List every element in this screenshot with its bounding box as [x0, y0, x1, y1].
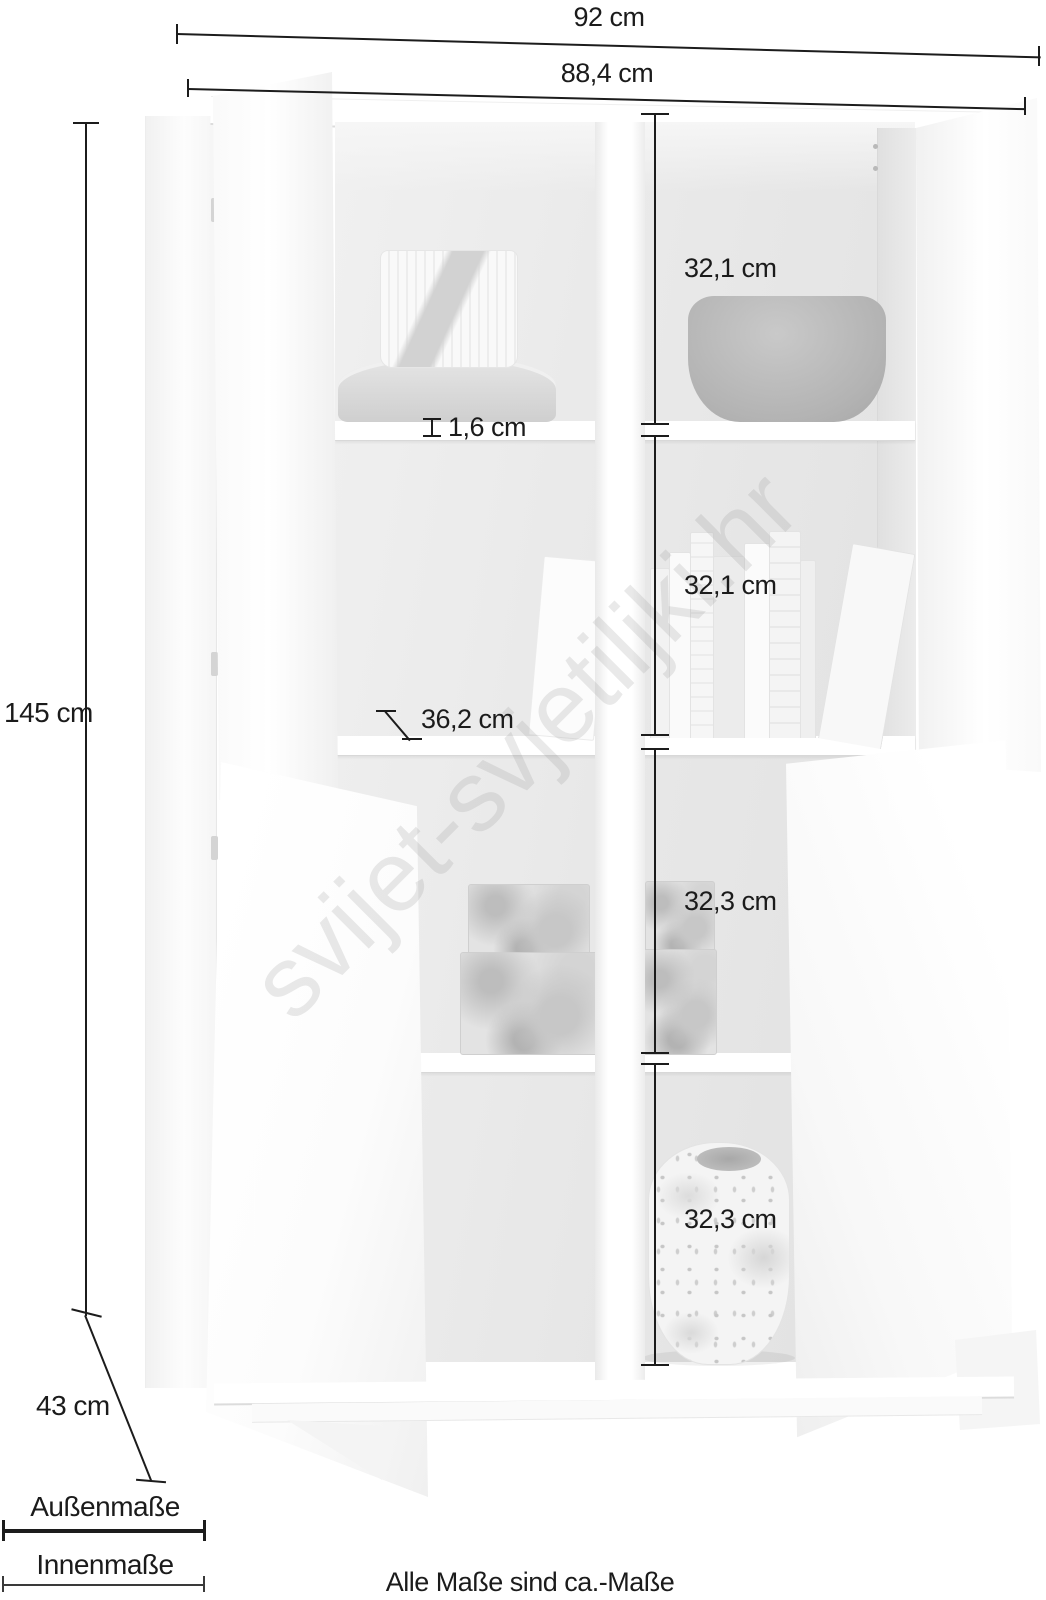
- door-upper-right-open: [916, 98, 1041, 772]
- inner-depth-tick-bottom: [402, 738, 422, 740]
- shelf-thickness-tick-bottom: [423, 435, 441, 437]
- compartment-2-line: [654, 436, 656, 736]
- legend-inner-line: [3, 1584, 205, 1586]
- compartment-3-tick-top: [641, 748, 669, 750]
- wicker-basket: [380, 250, 518, 368]
- stone-vase: [688, 296, 886, 422]
- legend-outer-label: Außenmaße: [0, 1491, 210, 1523]
- inner-width-label: 88,4 cm: [188, 58, 1026, 89]
- shelf-thickness-tick-top: [423, 418, 441, 420]
- outer-width-line: [177, 33, 1041, 59]
- cabinet-left-side-panel: [145, 116, 217, 1388]
- shelf-pin-hole: [873, 166, 878, 171]
- outer-width-tick-left: [176, 24, 178, 44]
- speckled-vase: [648, 1142, 790, 1365]
- hinge: [211, 836, 218, 860]
- legend-outer-line: [3, 1529, 205, 1533]
- hinge: [211, 652, 218, 676]
- book-spine: [800, 560, 816, 738]
- compartment-1-line: [654, 114, 656, 425]
- compartment-3-tick-bottom: [641, 1052, 669, 1054]
- compartment-4-tick-top: [641, 1063, 669, 1065]
- inner-depth-label: 36,2 cm: [421, 704, 514, 735]
- height-label: 145 cm: [4, 697, 84, 729]
- vase-opening: [697, 1147, 761, 1171]
- depth-label: 43 cm: [36, 1390, 106, 1422]
- shelf-thickness-label: 1,6 cm: [448, 412, 526, 443]
- height-line: [85, 124, 87, 1316]
- center-divider-panel: [595, 122, 645, 1384]
- compartment-3-label: 32,3 cm: [684, 886, 777, 917]
- compartment-4-line: [654, 1064, 656, 1366]
- legend-inner-label: Innenmaße: [0, 1549, 210, 1581]
- compartment-2-tick-bottom: [641, 734, 669, 736]
- marble-box: [460, 952, 599, 1055]
- compartment-2-label: 32,1 cm: [684, 570, 777, 601]
- legend-outer-tick-left: [2, 1520, 5, 1541]
- compartment-4-label: 32,3 cm: [684, 1204, 777, 1235]
- compartment-3-line: [654, 749, 656, 1054]
- shelf-pin-hole: [873, 144, 878, 149]
- height-tick-top: [73, 122, 99, 124]
- door-upper-left-open: [213, 72, 338, 800]
- legend-outer-tick-right: [203, 1520, 206, 1541]
- plinth-left-foot: [287, 1420, 382, 1480]
- outer-width-label: 92 cm: [177, 2, 1041, 33]
- approx-note: Alle Maße sind ca.-Maße: [330, 1567, 730, 1598]
- door-lower-right-open: [786, 740, 1012, 1438]
- inner-width-tick-left: [187, 79, 189, 97]
- product-dimension-diagram: svijet-svjetiljki.hr 92 cm 88,4 cm 145 c…: [0, 0, 1046, 1600]
- compartment-4-tick-bottom: [641, 1364, 669, 1366]
- legend-inner-tick-right: [203, 1576, 205, 1592]
- depth-tick-end: [136, 1479, 166, 1484]
- legend-inner-tick-left: [2, 1576, 4, 1592]
- marble-box: [468, 884, 590, 960]
- compartment-1-tick-bottom: [641, 423, 669, 425]
- outer-width-tick-right: [1038, 46, 1040, 66]
- inner-width-tick-right: [1024, 97, 1026, 115]
- compartment-1-label: 32,1 cm: [684, 253, 777, 284]
- compartment-2-tick-top: [641, 435, 669, 437]
- compartment-1-tick-top: [641, 113, 669, 115]
